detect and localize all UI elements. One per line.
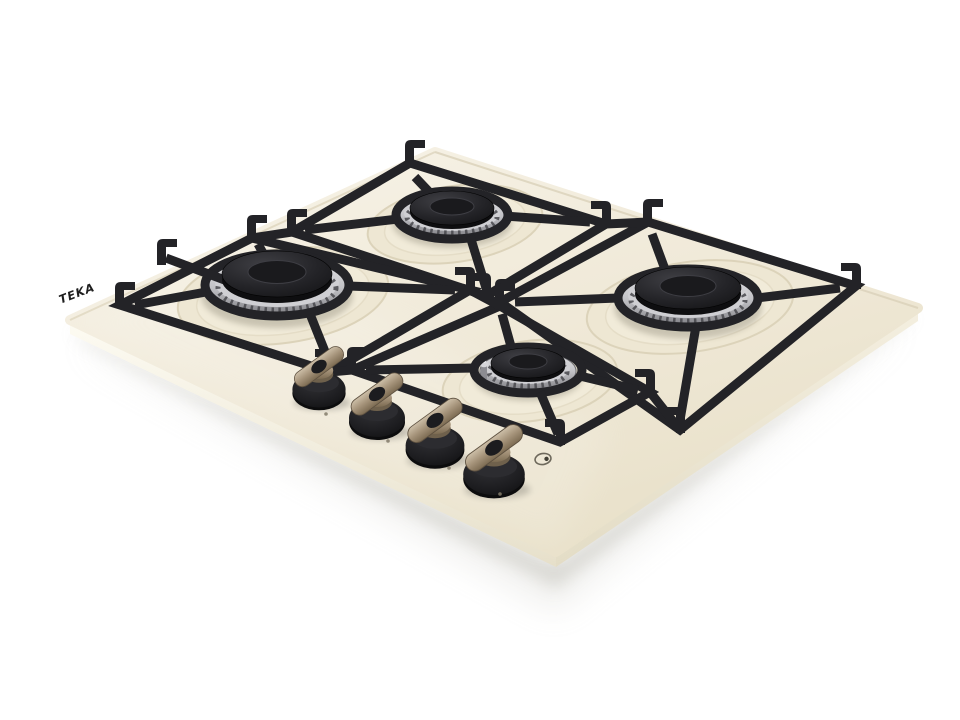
brand-logo-text: TEKA (58, 280, 95, 307)
burner-cap-front (491, 348, 565, 382)
brand-logo: TEKA (58, 280, 95, 307)
burner-cap-left (222, 251, 332, 303)
burner-cap-right (635, 267, 741, 315)
hob-illustration: TEKA (0, 0, 960, 720)
burner-cap-back (410, 191, 494, 229)
product-photo: TEKA (0, 0, 960, 720)
